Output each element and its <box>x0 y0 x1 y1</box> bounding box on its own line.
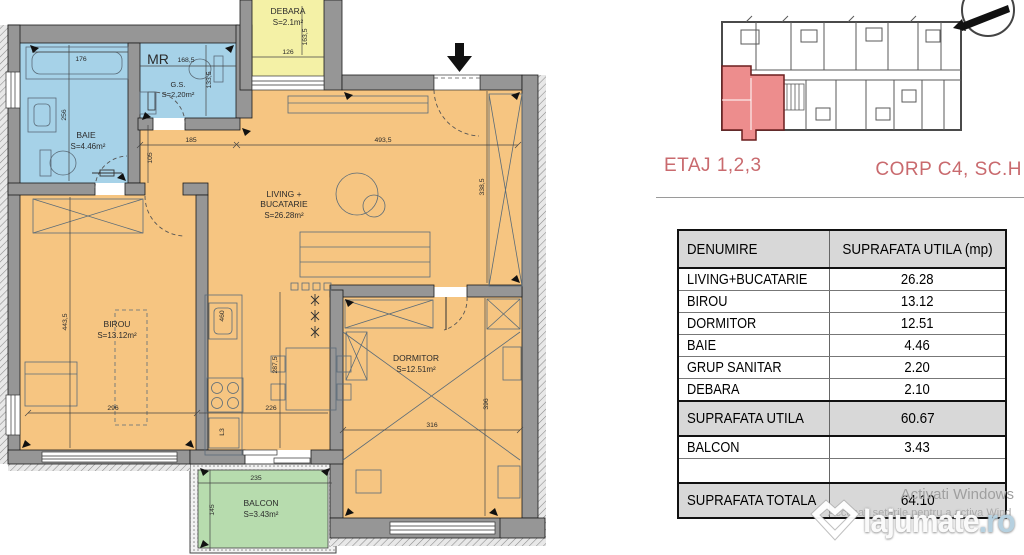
dim-balcon-h: 145 <box>209 504 216 516</box>
total-label-cell: SUPRAFATA TOTALA <box>679 492 829 509</box>
header-suprafata: SUPRAFATA UTILA (mp) <box>829 231 1005 267</box>
dim-baie-h: 256 <box>61 109 68 121</box>
dim-living-w: 493,5 <box>374 137 391 144</box>
dim-balcon-w: 235 <box>250 475 262 482</box>
room-value-cell: 2.10 <box>829 379 1005 400</box>
room-label-cell: BAIE <box>679 338 829 354</box>
room-value-cell: 13.12 <box>829 291 1005 312</box>
living-area: S=26.28m² <box>264 211 304 220</box>
dim-debara-w: 126 <box>282 49 294 56</box>
dim-debara-h: 163,5 <box>302 28 309 45</box>
dim-dormitor-h: 396 <box>483 398 490 410</box>
table-row: GRUP SANITAR 2.20 <box>679 357 1005 379</box>
dim-baie-w: 176 <box>75 56 87 63</box>
room-label-cell: DEBARA <box>679 382 829 398</box>
dim-hall-h: 105 <box>147 152 154 164</box>
table-row: BAIE 4.46 <box>679 335 1005 357</box>
table-row: BIROU 13.12 <box>679 291 1005 313</box>
floorplan-page: BAIE S=4.46m² MR G.S. S=2,20m² DEBARA S=… <box>0 0 1024 555</box>
table-row: DORMITOR 12.51 <box>679 313 1005 335</box>
debara-label: DEBARA <box>271 6 306 16</box>
room-label-cell: LIVING+BUCATARIE <box>679 272 829 288</box>
dim-kitchen-len: 460 <box>219 310 226 322</box>
site-watermark-logo: lajumate.ro <box>808 498 1023 544</box>
dim-kitchen-w: 226 <box>265 405 277 412</box>
balcon-area: S=3.43m² <box>244 510 279 519</box>
balcon-value-cell: 3.43 <box>829 437 1005 458</box>
right-panel: ETAJ 1,2,3 CORP C4, SC.H DENUMIRE SUPRAF… <box>656 0 1024 555</box>
living-label-2: BUCATARIE <box>260 199 308 209</box>
dim-gs-w: 168,5 <box>177 57 194 64</box>
dim-gs-h: 133,5 <box>206 71 213 88</box>
gs-label: G.S. <box>170 80 185 89</box>
debara-area: S=2.1m² <box>273 18 304 27</box>
table-row: LIVING+BUCATARIE 26.28 <box>679 269 1005 291</box>
mr-label: MR <box>147 51 169 67</box>
dim-hall-w: 185 <box>185 137 197 144</box>
lajumate-heart-icon <box>808 498 860 544</box>
apartment-floorplan: BAIE S=4.46m² MR G.S. S=2,20m² DEBARA S=… <box>0 0 656 555</box>
dormitor-label: DORMITOR <box>393 353 439 363</box>
section-divider <box>656 197 1024 198</box>
areas-table: DENUMIRE SUPRAFATA UTILA (mp) LIVING+BUC… <box>677 229 1007 519</box>
baie-label: BAIE <box>76 130 96 140</box>
logo-wordmark: lajumate.ro <box>863 503 1015 540</box>
table-header-row: DENUMIRE SUPRAFATA UTILA (mp) <box>679 231 1005 269</box>
dim-birou-h: 443,5 <box>62 313 69 330</box>
header-denumire: DENUMIRE <box>679 241 829 258</box>
room-value-cell: 12.51 <box>829 313 1005 334</box>
birou-area: S=13.12m² <box>97 331 137 340</box>
gs-area: S=2,20m² <box>162 90 195 99</box>
living-label-1: LIVING + <box>266 189 301 199</box>
dim-birou-w: 296 <box>107 405 119 412</box>
room-label-cell: DORMITOR <box>679 316 829 332</box>
spacer-row <box>679 459 1005 484</box>
table-row: DEBARA 2.10 <box>679 379 1005 402</box>
dim-dormitor-w: 316 <box>426 422 438 429</box>
room-value-cell: 4.46 <box>829 335 1005 356</box>
birou-label: BIROU <box>104 319 131 329</box>
north-arrow-icon <box>953 0 1014 36</box>
dim-fridge: L3 <box>219 428 226 436</box>
entrance-arrow-icon <box>447 43 472 72</box>
floor-label: ETAJ 1,2,3 <box>664 155 762 177</box>
room-value-cell: 26.28 <box>829 269 1005 290</box>
subtotal-row: SUPRAFATA UTILA 60.67 <box>679 402 1005 437</box>
building-label: CORP C4, SC.H <box>875 159 1022 181</box>
subtotal-label-cell: SUPRAFATA UTILA <box>679 410 829 427</box>
balcon-row: BALCON 3.43 <box>679 437 1005 459</box>
baie-area: S=4.46m² <box>71 142 106 151</box>
subtotal-value-cell: 60.67 <box>829 402 1005 435</box>
floor-caption-row: ETAJ 1,2,3 CORP C4, SC.H <box>656 155 1024 181</box>
dim-living-h: 338,5 <box>479 178 486 195</box>
building-overview-plan <box>656 0 1024 150</box>
room-value-cell: 2.20 <box>829 357 1005 378</box>
highlighted-unit <box>722 66 784 140</box>
balcon-label-cell: BALCON <box>679 440 829 456</box>
room-label-cell: GRUP SANITAR <box>679 360 829 376</box>
dormitor-area: S=12.51m² <box>396 365 436 374</box>
dim-kitchen-h: 287,5 <box>272 356 279 373</box>
balcon-label: BALCON <box>244 498 279 508</box>
room-label-cell: BIROU <box>679 294 829 310</box>
